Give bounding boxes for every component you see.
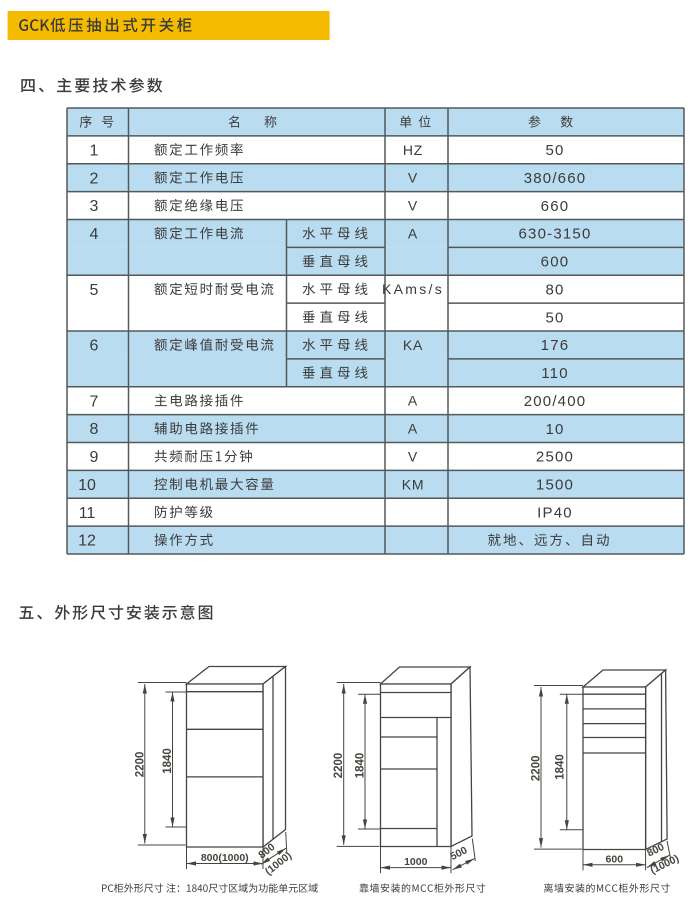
svg-text:V: V	[408, 170, 418, 186]
svg-text:8: 8	[90, 421, 99, 438]
svg-text:80: 80	[545, 281, 564, 298]
svg-text:2500: 2500	[536, 449, 574, 466]
svg-text:600: 600	[541, 254, 570, 271]
svg-text:1: 1	[90, 142, 99, 159]
svg-text:380/660: 380/660	[524, 170, 587, 187]
svg-text:2200: 2200	[134, 752, 146, 778]
svg-text:660: 660	[541, 198, 570, 215]
svg-text:3: 3	[90, 198, 99, 215]
svg-text:11: 11	[79, 505, 96, 522]
svg-text:630-3150: 630-3150	[519, 226, 592, 243]
svg-text:A: A	[408, 225, 418, 241]
svg-text:IP40: IP40	[537, 504, 573, 521]
svg-text:1840: 1840	[162, 748, 174, 774]
svg-text:12: 12	[78, 533, 96, 550]
svg-text:4: 4	[90, 226, 99, 243]
svg-text:2200: 2200	[531, 756, 543, 782]
svg-text:A: A	[408, 393, 418, 409]
svg-text:V: V	[408, 198, 418, 214]
svg-text:800(1000): 800(1000)	[201, 852, 249, 864]
svg-text:200/400: 200/400	[524, 393, 587, 410]
svg-text:KA: KA	[403, 337, 423, 353]
svg-text:176: 176	[541, 337, 570, 354]
svg-text:1840: 1840	[555, 754, 567, 780]
svg-text:V: V	[408, 448, 418, 464]
svg-text:2: 2	[90, 170, 99, 187]
svg-text:KM: KM	[402, 476, 425, 492]
svg-text:1840: 1840	[355, 753, 367, 779]
svg-text:110: 110	[541, 365, 569, 382]
svg-text:10: 10	[545, 421, 564, 438]
svg-text:50: 50	[545, 309, 564, 326]
svg-text:5: 5	[90, 282, 99, 299]
svg-text:2200: 2200	[333, 753, 345, 779]
svg-text:50: 50	[545, 142, 564, 159]
svg-text:KAms/s: KAms/s	[382, 281, 444, 297]
svg-text:9: 9	[90, 449, 99, 466]
svg-text:A: A	[408, 421, 418, 437]
svg-text:1000: 1000	[404, 856, 428, 868]
svg-text:10: 10	[78, 477, 96, 494]
svg-text:600: 600	[606, 853, 624, 865]
svg-text:1500: 1500	[536, 477, 574, 494]
svg-text:6: 6	[90, 338, 99, 355]
svg-text:HZ: HZ	[403, 142, 423, 158]
svg-text:7: 7	[90, 393, 99, 410]
